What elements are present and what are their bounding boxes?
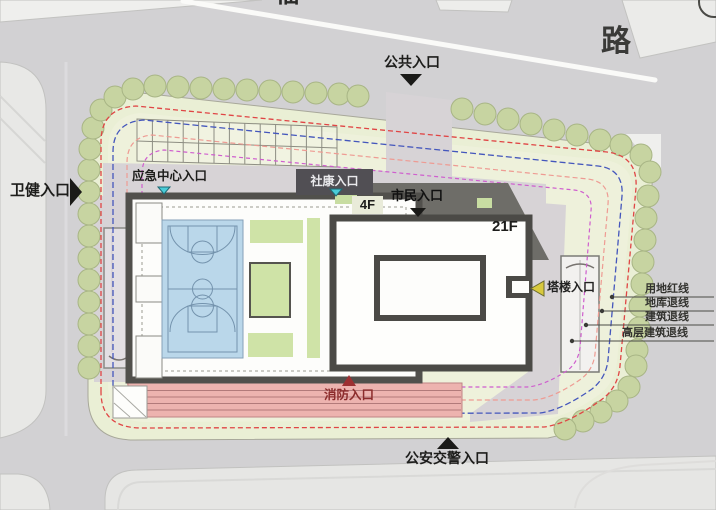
fire-entrance-arrow-icon <box>341 374 357 387</box>
fire-entrance-label: 消防入口 <box>324 389 374 402</box>
tree <box>122 78 144 100</box>
tree <box>78 247 100 269</box>
road-name-partial: 福 <box>275 0 303 8</box>
tree <box>625 355 647 377</box>
legend-item-building-setback: 建筑退线 <box>645 312 689 324</box>
tree <box>78 335 100 357</box>
tree <box>639 161 661 183</box>
parking-stalls <box>137 119 337 167</box>
tree <box>637 185 659 207</box>
health-entrance-arrow-icon <box>69 177 83 207</box>
tree <box>78 357 100 379</box>
tree <box>78 225 100 247</box>
road-name-label: 路 <box>601 26 631 58</box>
hatched-pad <box>113 386 147 418</box>
skylight <box>136 336 162 378</box>
tree <box>589 129 611 151</box>
tree <box>566 124 588 146</box>
citizen-entrance-arrow-icon <box>409 207 427 218</box>
public-entrance-arrow-icon <box>399 73 423 87</box>
tree <box>282 81 304 103</box>
tree <box>451 98 473 120</box>
tree <box>79 138 101 160</box>
tower-courtyard <box>377 258 483 318</box>
tree <box>259 80 281 102</box>
community-entrance-arrow-icon <box>329 188 343 197</box>
emergency-entrance-arrow-icon <box>157 186 171 195</box>
tower-entrance-label: 塔楼入口 <box>547 281 595 294</box>
legend-item-highrise-setback: 高层建筑退线 <box>622 328 688 340</box>
tower-floor-label: 21F <box>492 219 518 235</box>
tree <box>632 251 654 273</box>
health-entrance-label: 卫健入口 <box>10 183 70 199</box>
fire-lane <box>128 383 462 417</box>
tree <box>78 291 100 313</box>
site-plan: 福 路 公共入口 卫健入口 应急中心入口 社康入口 4F 市民入口 21F 塔楼… <box>0 0 716 510</box>
community-entrance-label: 社康入口 <box>296 172 373 189</box>
legend-item-basement-setback: 地库退线 <box>645 298 689 310</box>
tree <box>305 82 327 104</box>
tree <box>78 269 100 291</box>
tree <box>497 108 519 130</box>
tree <box>543 119 565 141</box>
police-entrance-arrow-icon <box>436 436 460 450</box>
skylight <box>136 203 162 243</box>
tower-building <box>333 218 529 368</box>
tree <box>635 207 657 229</box>
site-plan-drawing <box>0 0 716 510</box>
police-entrance-label: 公安交警入口 <box>405 451 489 466</box>
tree <box>78 313 100 335</box>
tree <box>144 75 166 97</box>
tree <box>347 85 369 107</box>
tree <box>213 78 235 100</box>
basketball-court <box>162 220 243 358</box>
skylight <box>136 276 162 302</box>
podium-floor-label: 4F <box>352 196 383 214</box>
citizen-entrance-label: 市民入口 <box>391 189 443 203</box>
tree <box>474 103 496 125</box>
right-ramp <box>561 256 599 372</box>
tree <box>167 76 189 98</box>
tree <box>236 79 258 101</box>
legend-item-land-red-line: 用地红线 <box>645 284 689 296</box>
public-entrance-label: 公共入口 <box>384 55 440 70</box>
tower-entrance-arrow-icon <box>530 280 545 297</box>
emergency-entrance-label: 应急中心入口 <box>132 170 207 183</box>
tree <box>634 229 656 251</box>
tree <box>520 113 542 135</box>
tree <box>190 77 212 99</box>
